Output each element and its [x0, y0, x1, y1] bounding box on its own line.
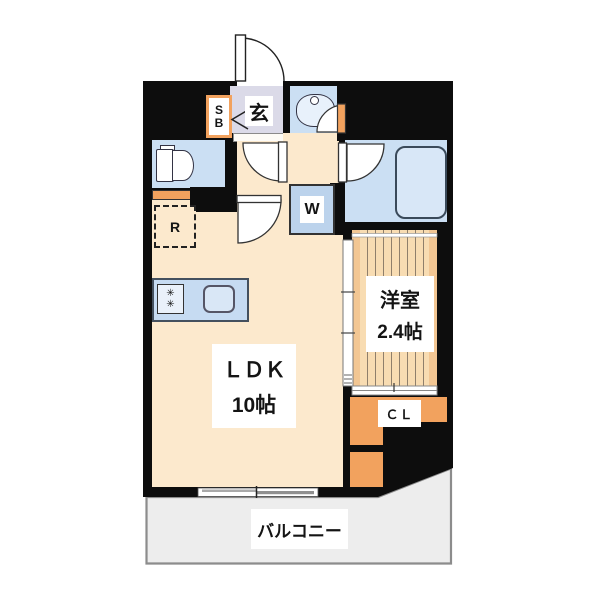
- closet-label: ＣＬ: [385, 404, 413, 423]
- western-room-name-label: 洋室: [380, 285, 420, 317]
- closet-label-box: ＣＬ: [378, 400, 421, 427]
- window-pane: [257, 491, 314, 494]
- bathroom-door-arc-icon: [347, 144, 384, 181]
- washbasin-door-leaf-icon: [338, 104, 346, 133]
- entrance-door-leaf-icon: [236, 35, 246, 81]
- ldk-name-label: ＬＤＫ: [223, 353, 286, 389]
- ldk-label-box: ＬＤＫ 10帖: [212, 344, 296, 428]
- balcony-label: バルコニー: [257, 517, 342, 542]
- western-room-size-label: 2.4帖: [377, 317, 422, 344]
- window-rail-icon: [352, 234, 437, 238]
- bathroom-door-leaf-icon: [339, 143, 347, 182]
- hall-door-leaf-icon: [279, 142, 288, 182]
- entrance-door-arc-icon: [241, 38, 284, 81]
- western-room-label-box: 洋室 2.4帖: [366, 276, 434, 352]
- window-pane: [202, 490, 256, 493]
- ldk-door-leaf-icon: [237, 196, 281, 203]
- ldk-size-label: 10帖: [232, 389, 276, 419]
- entrance-label: 玄: [249, 97, 269, 126]
- ldk-door-arc-icon: [238, 200, 281, 243]
- balcony-label-box: バルコニー: [251, 509, 348, 549]
- hall-door-arc-icon: [243, 143, 281, 181]
- floor-plan: W ✳ ✳ R S B: [0, 0, 600, 600]
- entrance-label-box: 玄: [245, 96, 273, 126]
- sliding-door-vertical-icon: [343, 240, 353, 386]
